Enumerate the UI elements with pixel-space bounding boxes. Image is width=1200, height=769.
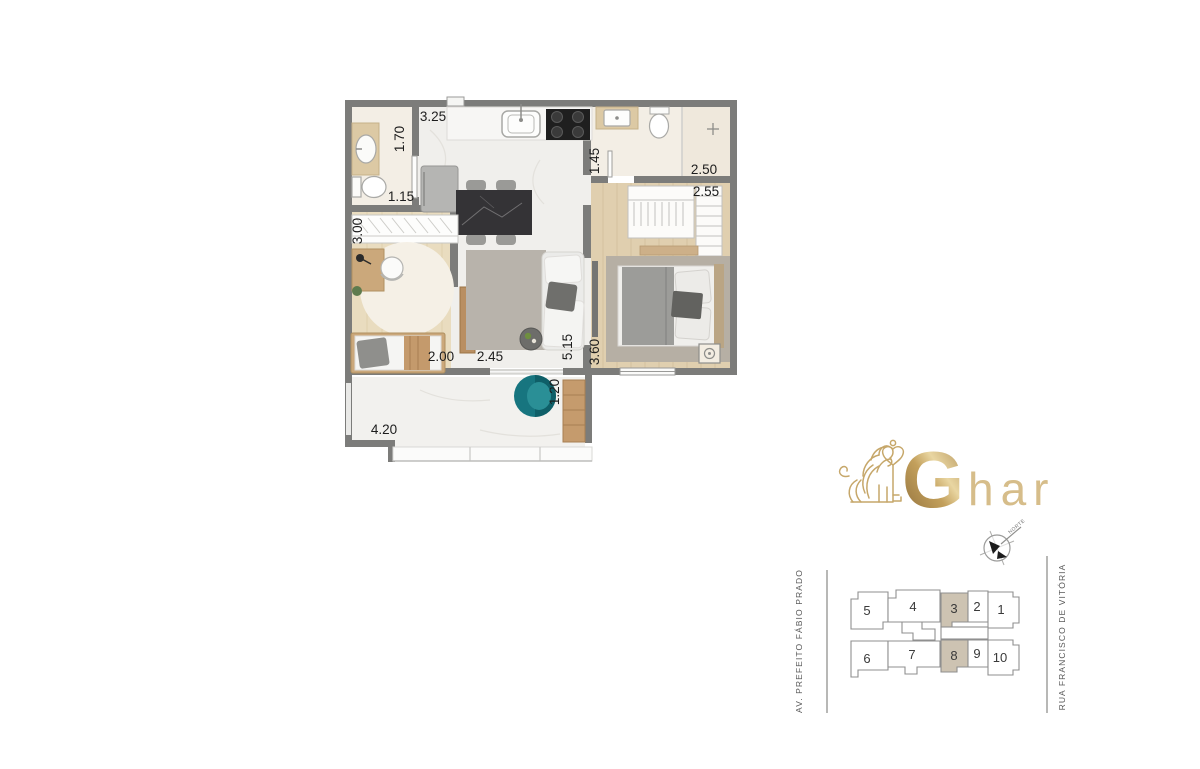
stair-core-shape [902, 622, 935, 640]
desk-icon [352, 249, 384, 291]
dining-chair [466, 180, 486, 191]
desk-chair-icon [381, 257, 403, 279]
toilet-icon [362, 177, 386, 198]
fridge-icon [421, 166, 458, 212]
street-name-left: AV. PREFEITO FÁBIO PRADO [794, 569, 804, 713]
street-name-right: RUA FRANCISCO DE VITÓRIA [1057, 564, 1067, 711]
dim-wardrobe-width: 2.55 [693, 184, 719, 199]
dim-living-width: 2.45 [477, 349, 503, 364]
side-table-icon [520, 328, 542, 350]
plant-icon [352, 286, 362, 296]
corridor-shape [941, 627, 988, 639]
shaft [447, 97, 464, 106]
site-plan: AV. PREFEITO FÁBIO PRADO RUA FRANCISCO D… [794, 556, 1067, 713]
sofa-dark-pillow [545, 281, 577, 312]
dim-balcony-width: 4.20 [371, 422, 397, 437]
balcony-planter [563, 380, 585, 442]
wardrobe-icon [628, 186, 694, 238]
unit-label-6: 6 [863, 651, 870, 666]
compass: NORTE [980, 518, 1027, 565]
dining-chair [496, 180, 516, 191]
unit-label-4: 4 [909, 599, 916, 614]
unit-label-5: 5 [863, 603, 870, 618]
bed-bench [640, 246, 698, 255]
dim-bath2-width: 2.50 [691, 162, 717, 177]
unit-label-2: 2 [973, 599, 980, 614]
logo-initial: G [902, 435, 964, 524]
headboard [714, 264, 724, 348]
unit-label-9: 9 [973, 646, 980, 661]
dining-chair [496, 234, 516, 245]
dim-kitchen-width: 3.25 [420, 109, 446, 124]
north-label: NORTE [1007, 518, 1026, 536]
balcony-railing [393, 447, 592, 461]
balcony-slider-track2 [490, 373, 563, 375]
floor-plan-page: 3.25 1.70 1.15 3.00 2.00 2.45 5.15 3.60 … [0, 0, 1200, 769]
dim-office-width: 2.00 [428, 349, 454, 364]
balcony-slider-track1 [490, 369, 563, 371]
unit-label-7: 7 [908, 647, 915, 662]
lion-key-icon [840, 440, 904, 502]
dim-living-depth: 5.15 [560, 334, 575, 360]
toilet2-icon [650, 114, 669, 138]
dim-bath1-width: 1.15 [388, 189, 414, 204]
dim-bath1-depth: 1.70 [392, 126, 407, 152]
bed-tray [671, 291, 703, 320]
toilet-tank [352, 177, 361, 197]
dim-office-depth: 3.00 [350, 218, 365, 244]
bathroom2-door [608, 151, 612, 177]
plan-graphic: 3.25 1.70 1.15 3.00 2.00 2.45 5.15 3.60 … [0, 0, 1200, 769]
daybed-throw [404, 336, 430, 370]
dim-balcony-depth: 1.20 [547, 379, 562, 405]
sofa-pillow [544, 255, 582, 284]
toilet2-tank [650, 107, 669, 114]
logo-wordmark: har [968, 463, 1055, 515]
dim-bedroom-depth: 3.60 [587, 339, 602, 365]
unit-label-8: 8 [950, 648, 957, 663]
floor-plan: 3.25 1.70 1.15 3.00 2.00 2.45 5.15 3.60 … [345, 97, 737, 462]
brand-logo: G har [840, 435, 1056, 524]
dim-bath2-depth: 1.45 [587, 148, 602, 174]
unit-label-10: 10 [993, 650, 1007, 665]
dining-chair [466, 234, 486, 245]
daybed-blanket [356, 337, 390, 369]
balcony-glass-panel [346, 383, 351, 435]
unit-label-1: 1 [997, 602, 1004, 617]
bedroom-sliding-door [592, 261, 598, 337]
unit-label-3: 3 [950, 601, 957, 616]
